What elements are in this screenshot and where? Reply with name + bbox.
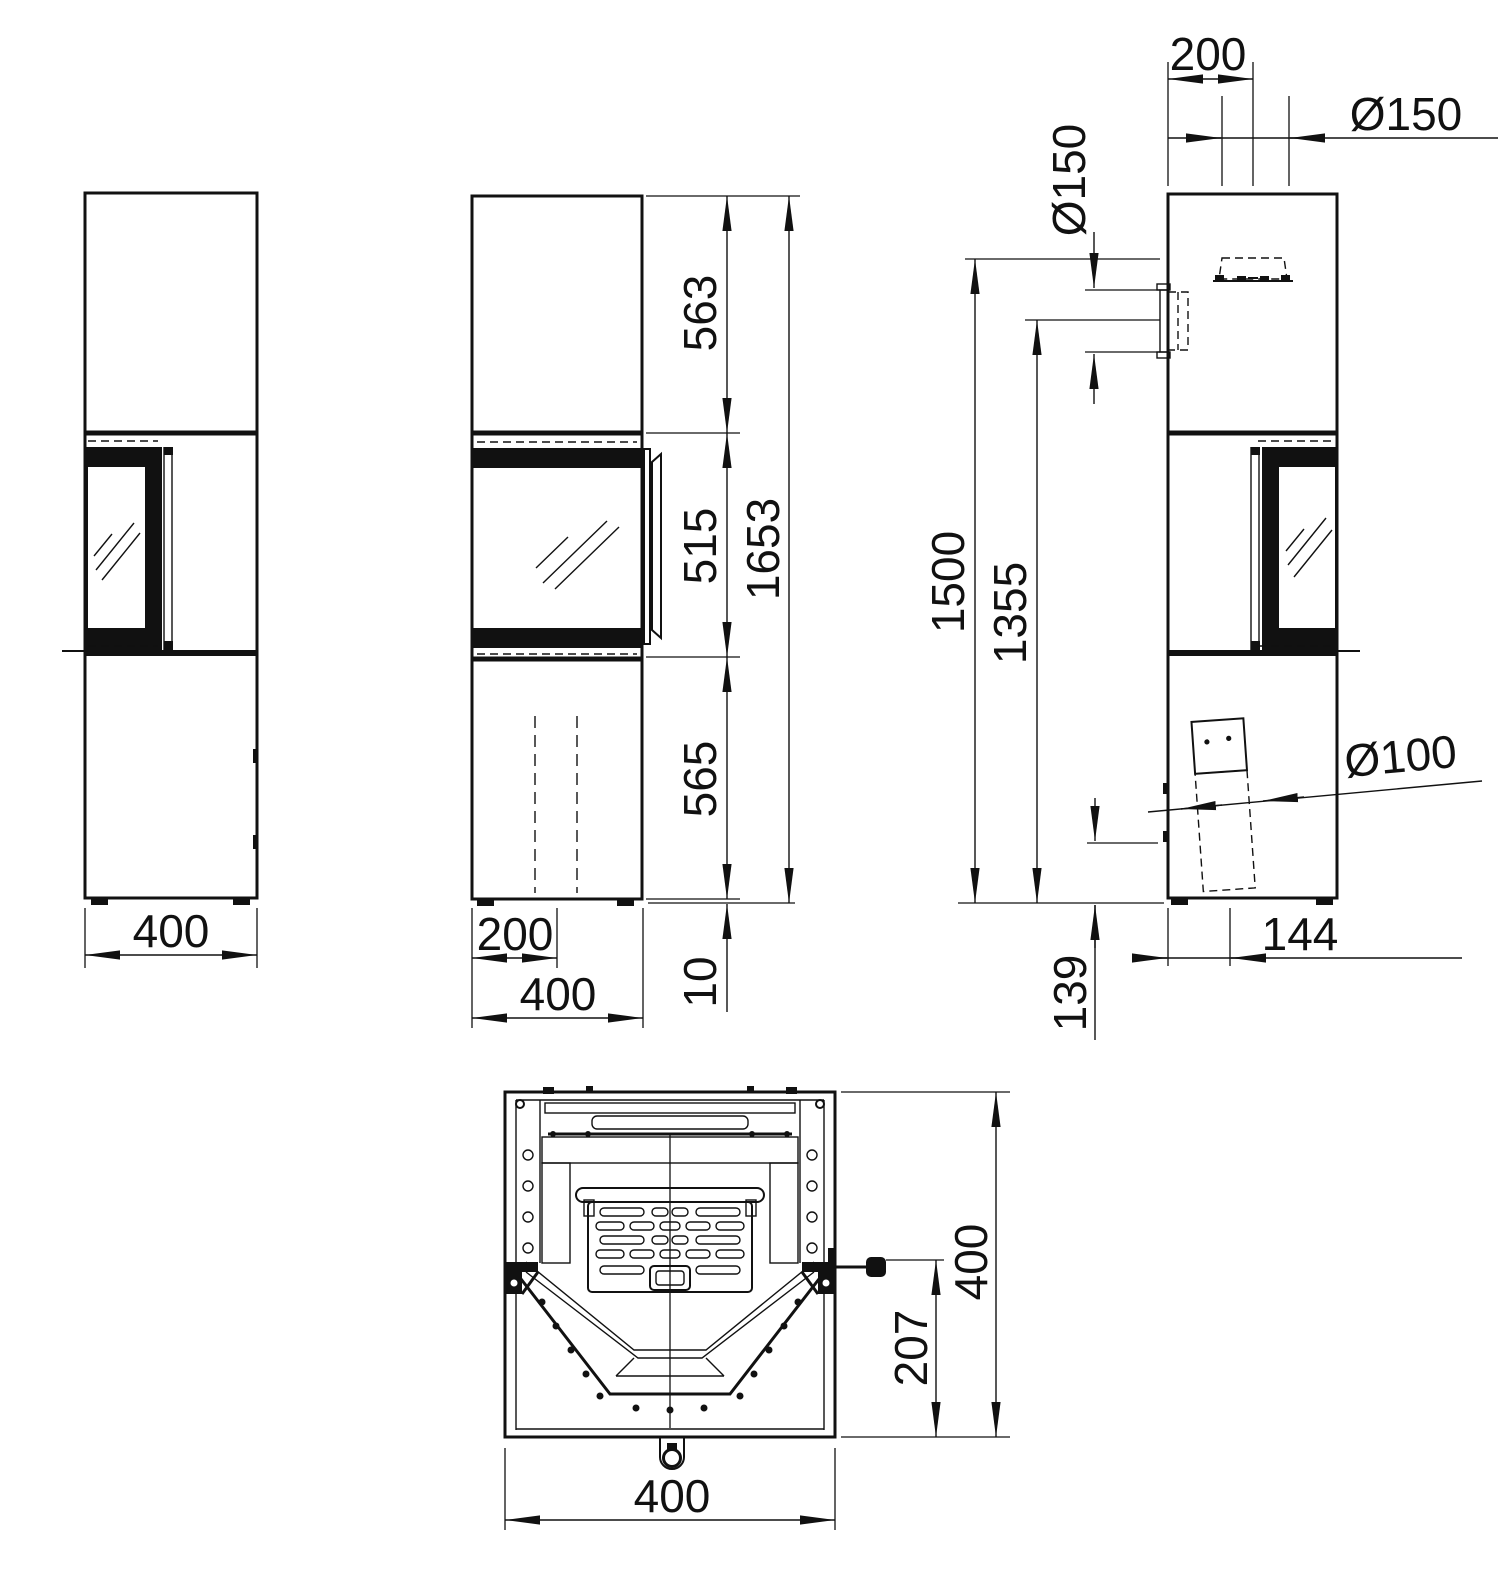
dim-front-width: 400 bbox=[520, 968, 597, 1020]
dim-rear-flue-bottom-height: 1355 bbox=[984, 562, 1036, 664]
front-glass-reflection bbox=[536, 521, 619, 589]
dim-rear-flue-diameter: Ø150 bbox=[1043, 124, 1095, 237]
dim-front-top-height: 563 bbox=[674, 275, 726, 352]
stove-drawing-svg: 400 bbox=[0, 0, 1500, 1584]
front-foot-1 bbox=[477, 899, 494, 906]
left-window-glass bbox=[88, 467, 145, 628]
dim-plan-width: 400 bbox=[634, 1470, 711, 1522]
dim-plan-depth: 400 bbox=[945, 1224, 997, 1301]
left-hinge-mark-1 bbox=[253, 749, 258, 763]
plan-top-hardware bbox=[516, 1086, 824, 1108]
left-width-dimension: 400 bbox=[85, 905, 257, 968]
plan-back-panel bbox=[545, 1103, 795, 1113]
right-edge-mark-1 bbox=[1163, 783, 1168, 794]
plan-right-lining bbox=[770, 1163, 798, 1263]
left-foot-2 bbox=[233, 898, 250, 905]
rear-flue-collar bbox=[1157, 284, 1188, 358]
plan-left-hinge-corner bbox=[506, 1262, 538, 1294]
dim-rear-flue-top-height: 1500 bbox=[922, 531, 974, 633]
right-foot-2 bbox=[1316, 898, 1333, 905]
front-frame-top bbox=[472, 448, 642, 468]
right-door-gap bbox=[1251, 447, 1260, 650]
right-height-dimensions: 1500 1355 bbox=[922, 259, 1164, 903]
right-foot-1 bbox=[1171, 898, 1188, 905]
dim-flue-center-offset: 200 bbox=[1170, 28, 1247, 80]
left-hinge-mark-2 bbox=[253, 835, 258, 849]
dim-air-intake-offset: 144 bbox=[1262, 908, 1339, 960]
plan-section-view: 400 400 207 bbox=[505, 1086, 1010, 1530]
plan-rear-deflector bbox=[592, 1116, 748, 1129]
dim-front-total-height: 1653 bbox=[737, 498, 789, 600]
left-side-view: 400 bbox=[62, 193, 258, 968]
right-side-view: 200 Ø150 Ø150 1500 1355 139 bbox=[922, 28, 1498, 1040]
front-foot-2 bbox=[617, 899, 634, 906]
plan-left-lining bbox=[542, 1163, 570, 1263]
dim-front-window-height: 515 bbox=[674, 508, 726, 585]
dim-air-intake-diameter: Ø100 bbox=[1342, 725, 1459, 787]
dim-front-lower-height: 565 bbox=[674, 741, 726, 818]
plan-door-latch bbox=[660, 1437, 684, 1469]
technical-drawing-page: 400 bbox=[0, 0, 1500, 1584]
front-frame-bottom bbox=[472, 628, 642, 648]
plan-width-dimension: 400 bbox=[505, 1448, 835, 1530]
dim-left-width: 400 bbox=[133, 905, 210, 957]
dim-front-plinth-height: 10 bbox=[674, 956, 726, 1007]
dim-front-half-width: 200 bbox=[477, 908, 554, 960]
front-width-dimensions: 200 400 bbox=[472, 908, 643, 1028]
front-door-handle bbox=[644, 449, 661, 644]
front-height-dimensions: 563 515 565 1653 10 bbox=[646, 196, 800, 1012]
right-bottom-dimensions: 139 144 Ø100 bbox=[1044, 725, 1482, 1040]
left-foot-1 bbox=[91, 898, 108, 905]
dim-air-intake-height: 139 bbox=[1044, 955, 1096, 1032]
top-flue-collar-hidden bbox=[1213, 258, 1293, 282]
dim-plan-handle-depth: 207 bbox=[885, 1310, 937, 1387]
front-view: 563 515 565 1653 10 200 400 bbox=[472, 196, 800, 1028]
right-window-glass bbox=[1279, 467, 1335, 628]
right-edge-mark-2 bbox=[1163, 831, 1168, 842]
dim-top-flue-diameter: Ø150 bbox=[1350, 88, 1463, 140]
left-door-gap bbox=[164, 447, 173, 650]
right-top-dimensions: 200 Ø150 Ø150 bbox=[1043, 28, 1498, 404]
